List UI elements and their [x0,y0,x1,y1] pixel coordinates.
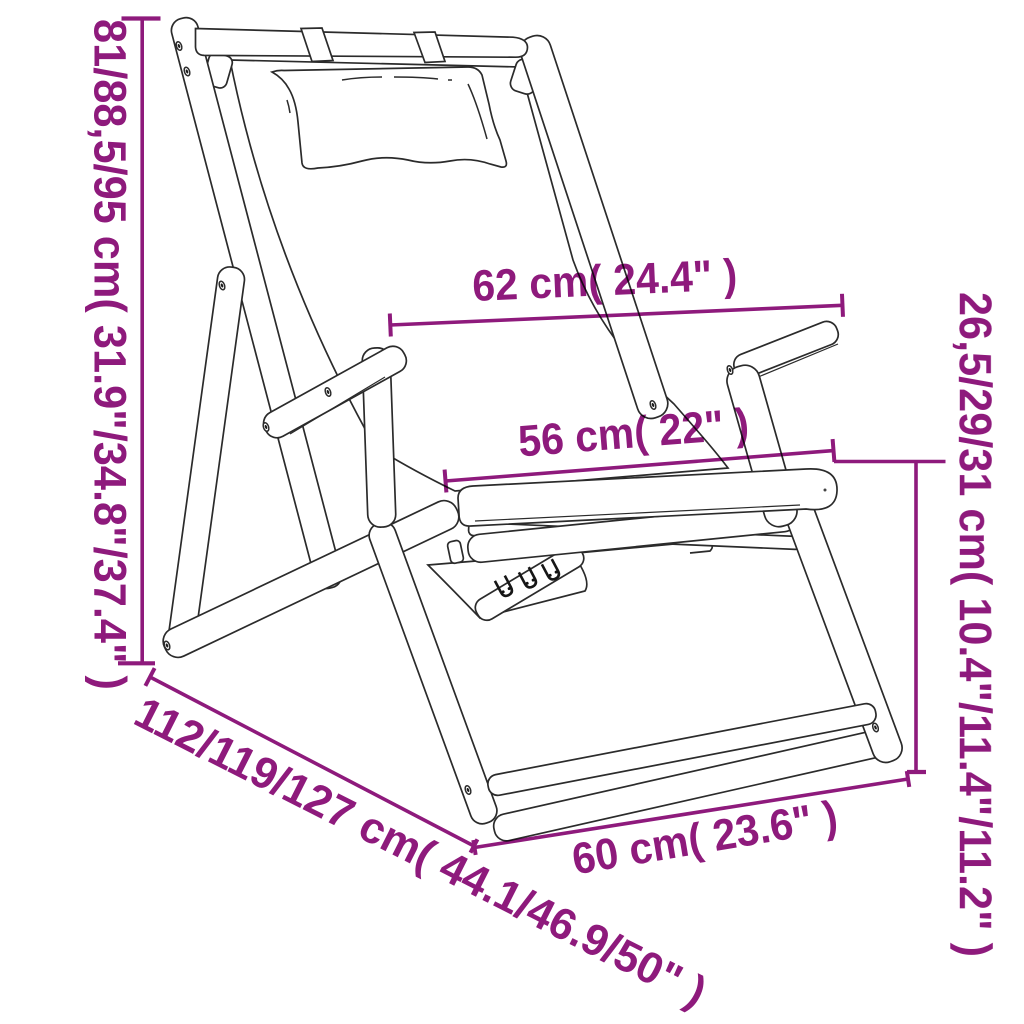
svg-text:26,5/29/31 cm( 10.4"/11.4"/11.: 26,5/29/31 cm( 10.4"/11.4"/11.2" ) [950,292,1001,957]
svg-text:81/88,5/95 cm( 31.9"/34.8"/37.: 81/88,5/95 cm( 31.9"/34.8"/37.4" ) [85,19,136,690]
